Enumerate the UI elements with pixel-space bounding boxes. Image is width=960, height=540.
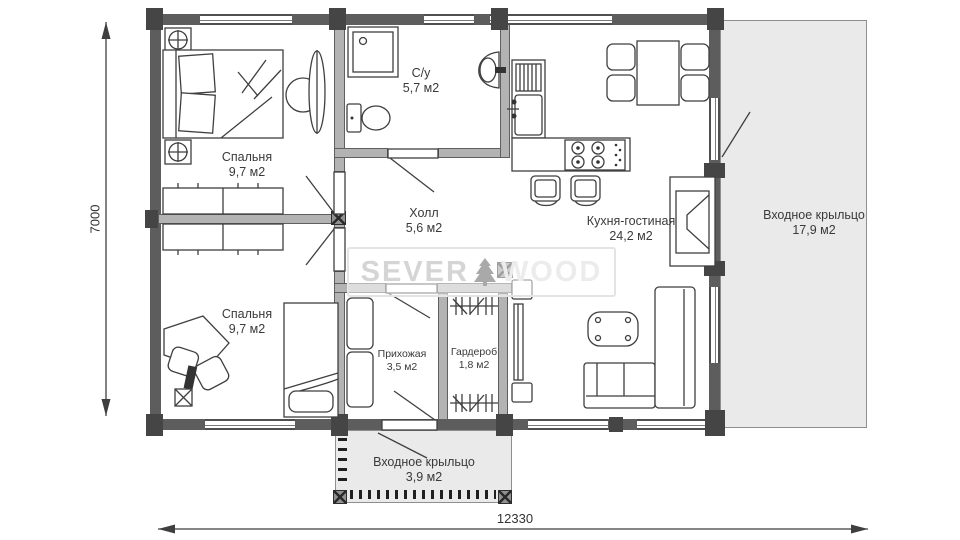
room-name: Гардероб <box>451 346 497 359</box>
room-name: С/у <box>403 66 439 81</box>
door-leaf-bedroom2 <box>306 228 345 271</box>
room-area: 5,7 м2 <box>403 81 439 96</box>
room-area: 24,2 м2 <box>587 229 675 244</box>
room-label-bedroom-2: Спальня 9,7 м2 <box>222 307 272 337</box>
room-area: 9,7 м2 <box>222 165 272 180</box>
floor-plan-canvas: Спальня 9,7 м2 С/у 5,7 м2 Холл 5,6 м2 Ку… <box>0 0 960 540</box>
room-name: Спальня <box>222 150 272 165</box>
coffee-table <box>588 312 638 346</box>
vent-symbol-2 <box>165 140 191 164</box>
room-area: 1,8 м2 <box>451 359 497 372</box>
room-label-kitchen-living: Кухня-гостиная 24,2 м2 <box>587 214 675 244</box>
room-area: 17,9 м2 <box>763 223 865 238</box>
kitchen-counter <box>507 60 545 138</box>
room-label-bathroom: С/у 5,7 м2 <box>403 66 439 96</box>
room-name: Входное крыльцо <box>763 208 865 223</box>
dimension-width: 12330 <box>497 511 533 526</box>
desk-group <box>164 316 231 406</box>
toilet <box>347 104 390 132</box>
dimension-line-vertical <box>102 22 111 416</box>
room-name: Кухня-гостиная <box>587 214 675 229</box>
room-label-bedroom-1: Спальня 9,7 м2 <box>222 150 272 180</box>
corner-sofa <box>584 287 695 408</box>
door-leaf-bathroom <box>388 149 438 192</box>
room-area: 9,7 м2 <box>222 322 272 337</box>
cheval-mirror <box>286 50 325 134</box>
dimension-height: 7000 <box>88 205 103 234</box>
double-bed <box>163 50 283 138</box>
wardrobe-units-bedroom1 <box>163 183 283 255</box>
leader-line-porch-right <box>722 112 750 157</box>
room-area: 3,9 м2 <box>373 470 475 485</box>
room-label-wardrobe: Гардероб 1,8 м2 <box>451 346 497 372</box>
room-name: Входное крыльцо <box>373 455 475 470</box>
kitchen-island <box>512 138 630 171</box>
hallway-bench <box>347 298 373 407</box>
room-name: Холл <box>406 206 442 221</box>
entry-door <box>382 391 437 430</box>
watermark-text-right: WOOD <box>501 256 602 289</box>
single-bed <box>284 303 338 417</box>
room-label-hallway: Прихожая 3,5 м2 <box>378 348 427 374</box>
room-label-porch-right: Входное крыльцо 17,9 м2 <box>763 208 865 238</box>
room-label-hall: Холл 5,6 м2 <box>406 206 442 236</box>
spruce-tree-icon <box>474 258 496 286</box>
door-leaf-bedroom1 <box>306 172 345 214</box>
room-name: Прихожая <box>378 348 427 361</box>
watermark-text-left: SEVER <box>361 256 469 289</box>
clothes-rail-top <box>450 297 498 315</box>
washbasin <box>479 52 506 88</box>
room-area: 3,5 м2 <box>378 361 427 374</box>
watermark: SEVER WOOD <box>347 247 616 297</box>
clothes-rail-bottom <box>450 394 498 412</box>
bar-stool-2 <box>571 176 600 206</box>
bar-stool-1 <box>531 176 560 206</box>
room-label-porch-bottom: Входное крыльцо 3,9 м2 <box>373 455 475 485</box>
room-area: 5,6 м2 <box>406 221 442 236</box>
room-name: Спальня <box>222 307 272 322</box>
shower-cabin <box>348 27 398 77</box>
vent-symbol-1 <box>165 28 191 52</box>
tv-unit <box>512 280 532 402</box>
dining-table <box>607 41 709 105</box>
fireplace <box>670 177 715 266</box>
